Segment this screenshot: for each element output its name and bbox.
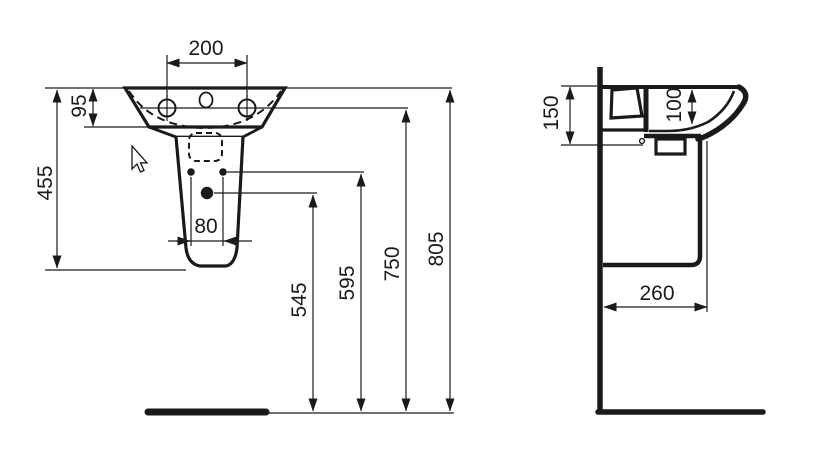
background xyxy=(0,0,820,466)
dim-label-750: 750 xyxy=(381,246,404,281)
dim-label-100: 100 xyxy=(663,87,686,122)
dim-label-200: 200 xyxy=(188,37,223,60)
washbasin-dimension-drawing: 200 95 455 80 545 xyxy=(0,0,820,466)
dim-label-545: 545 xyxy=(288,282,311,317)
waste-outlet-dot xyxy=(201,187,213,199)
fixing-dot-left xyxy=(187,168,195,176)
side-tap-deck-section xyxy=(611,88,642,118)
dim-label-805: 805 xyxy=(425,231,448,266)
dim-label-260: 260 xyxy=(639,282,674,305)
dim-label-455: 455 xyxy=(34,165,57,200)
fixing-dot-right xyxy=(219,168,227,176)
dim-label-80: 80 xyxy=(194,215,217,238)
side-waste-fitting xyxy=(656,139,685,154)
dim-label-150: 150 xyxy=(540,95,563,130)
dim-label-95: 95 xyxy=(68,94,91,117)
dim-label-595: 595 xyxy=(336,265,359,300)
technical-drawing-canvas: 200 95 455 80 545 xyxy=(0,0,820,466)
pedestal-front-outline xyxy=(176,137,243,266)
